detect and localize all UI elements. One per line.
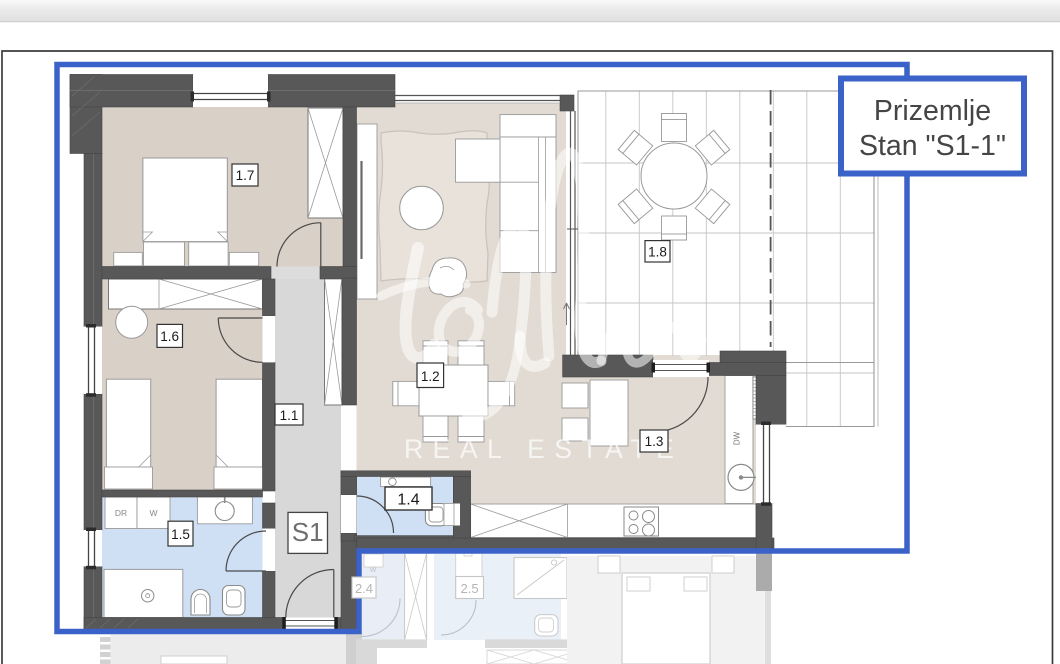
svg-text:DW: DW <box>733 431 742 445</box>
svg-text:1.1: 1.1 <box>280 408 299 423</box>
svg-text:Prizemlje: Prizemlje <box>874 95 991 127</box>
svg-text:W: W <box>370 567 377 574</box>
svg-text:W: W <box>149 508 157 518</box>
svg-text:1.5: 1.5 <box>171 527 190 542</box>
svg-text:S1: S1 <box>292 517 324 547</box>
svg-text:1.4: 1.4 <box>397 492 419 509</box>
svg-text:1.2: 1.2 <box>421 369 440 384</box>
svg-text:Stan "S1-1": Stan "S1-1" <box>859 130 1006 162</box>
svg-text:2.4: 2.4 <box>355 581 373 596</box>
svg-text:1.3: 1.3 <box>645 434 664 449</box>
svg-text:1.8: 1.8 <box>648 245 667 260</box>
svg-text:DR: DR <box>115 508 127 518</box>
svg-text:1.7: 1.7 <box>236 168 255 183</box>
svg-text:1.6: 1.6 <box>160 329 179 344</box>
svg-text:2.5: 2.5 <box>461 581 479 596</box>
